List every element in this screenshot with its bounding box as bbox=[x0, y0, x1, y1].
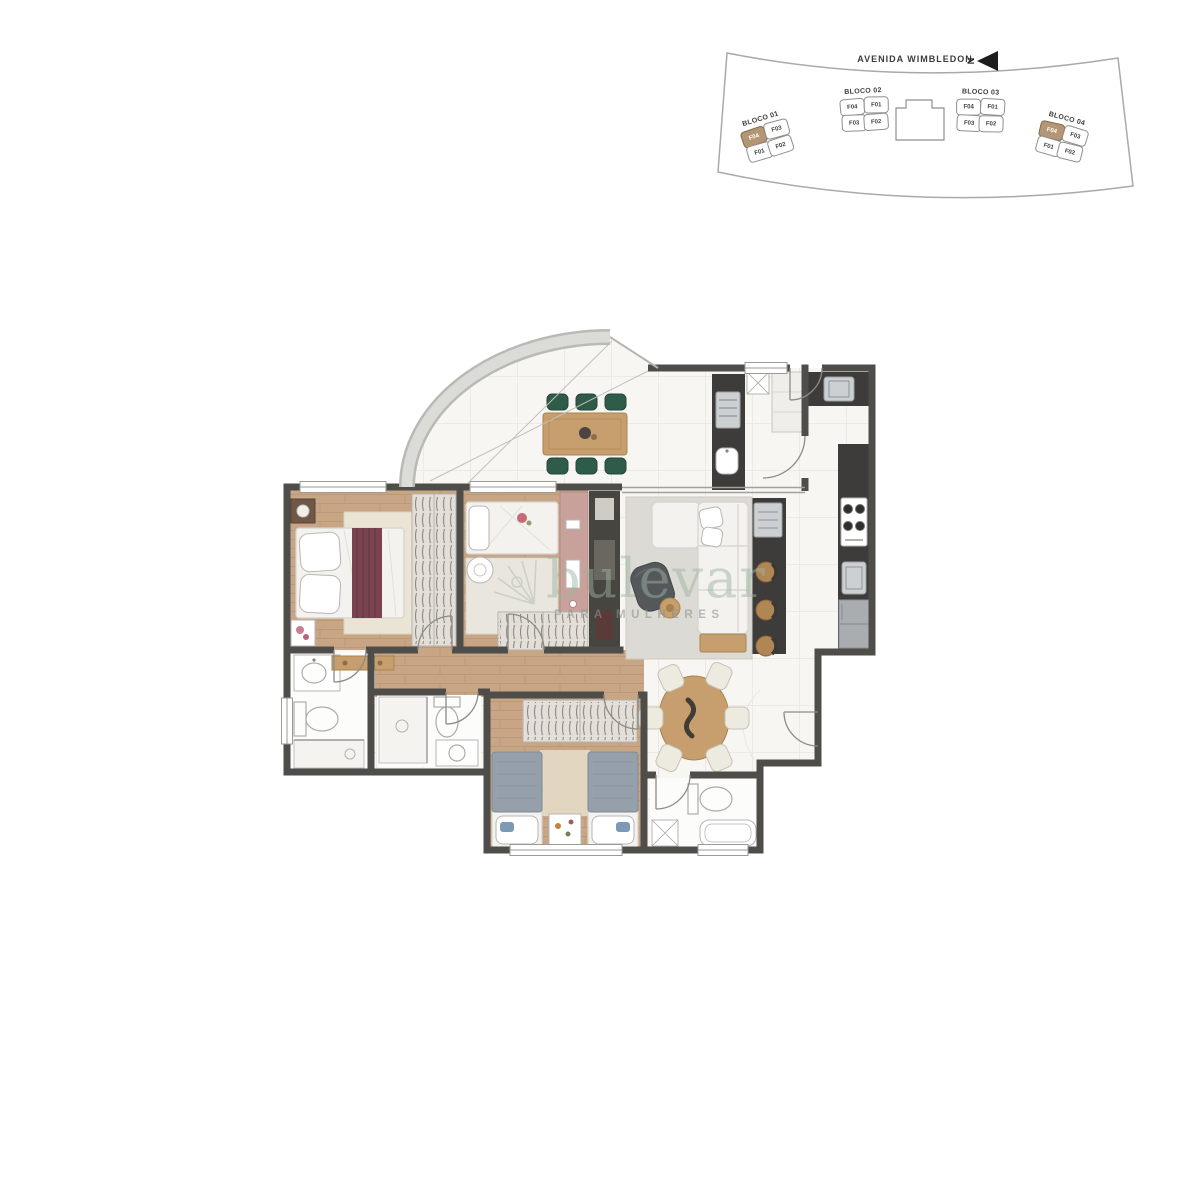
pillow bbox=[469, 506, 489, 550]
twin-bed-right bbox=[588, 752, 638, 848]
sofa-console bbox=[700, 634, 746, 652]
twin-rug bbox=[540, 750, 590, 816]
sofa-pillow bbox=[698, 506, 724, 530]
floor-plan bbox=[0, 0, 1200, 1200]
bath2-shower bbox=[379, 697, 427, 763]
pouf bbox=[467, 557, 493, 583]
ensuite-shower bbox=[294, 740, 364, 768]
floor-plan-page: AVENIDA WIMBLEDON N BLOCO 01 F04 F03 F01… bbox=[0, 0, 1200, 1200]
grill bbox=[716, 392, 740, 428]
twin-bed-left bbox=[492, 752, 542, 848]
bed-flower bbox=[517, 513, 527, 523]
table-centerpiece bbox=[579, 427, 591, 439]
bar-stools bbox=[756, 562, 776, 656]
sofa-pillow bbox=[701, 526, 724, 547]
terrace-cabinet bbox=[772, 372, 802, 432]
ensuite-toilet bbox=[294, 702, 306, 736]
pillow bbox=[299, 574, 341, 614]
pillow bbox=[299, 532, 342, 573]
bath3-toilet bbox=[688, 784, 698, 814]
bedroom-2 bbox=[466, 492, 588, 650]
sofa-chaise bbox=[652, 502, 700, 548]
twin-nightstand bbox=[549, 814, 581, 846]
bath2-toilet bbox=[434, 697, 460, 707]
tv bbox=[594, 540, 615, 580]
living-room bbox=[589, 491, 752, 659]
nightstand bbox=[291, 620, 315, 646]
